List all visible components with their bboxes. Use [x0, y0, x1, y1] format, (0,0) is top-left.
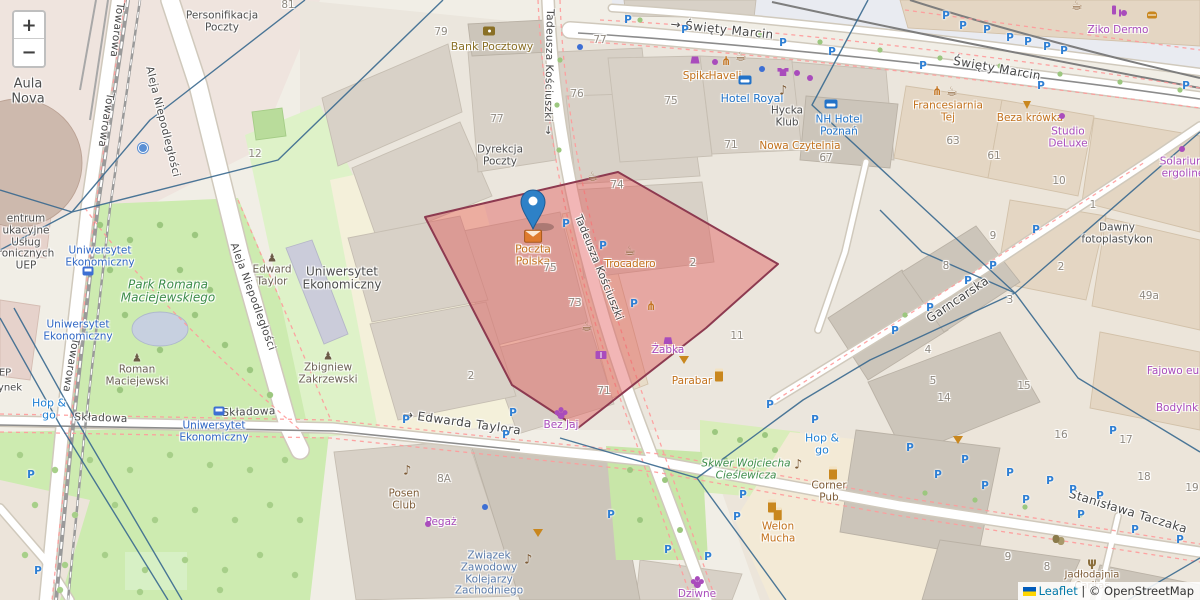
leaflet-link[interactable]: Leaflet: [1039, 584, 1078, 598]
attribution: Leaflet | © OpenStreetMap: [1018, 582, 1200, 600]
base-map: [0, 0, 1200, 600]
ukraine-flag-icon: [1023, 587, 1036, 596]
map[interactable]: TowarowaTowarowaTowarowaAleja Niepodległ…: [0, 0, 1200, 600]
attribution-separator: |: [1078, 584, 1089, 598]
zoom-out-button[interactable]: −: [14, 39, 44, 66]
osm-credit: © OpenStreetMap: [1089, 584, 1194, 598]
zoom-in-button[interactable]: +: [14, 12, 44, 39]
zoom-control: + −: [12, 10, 46, 68]
